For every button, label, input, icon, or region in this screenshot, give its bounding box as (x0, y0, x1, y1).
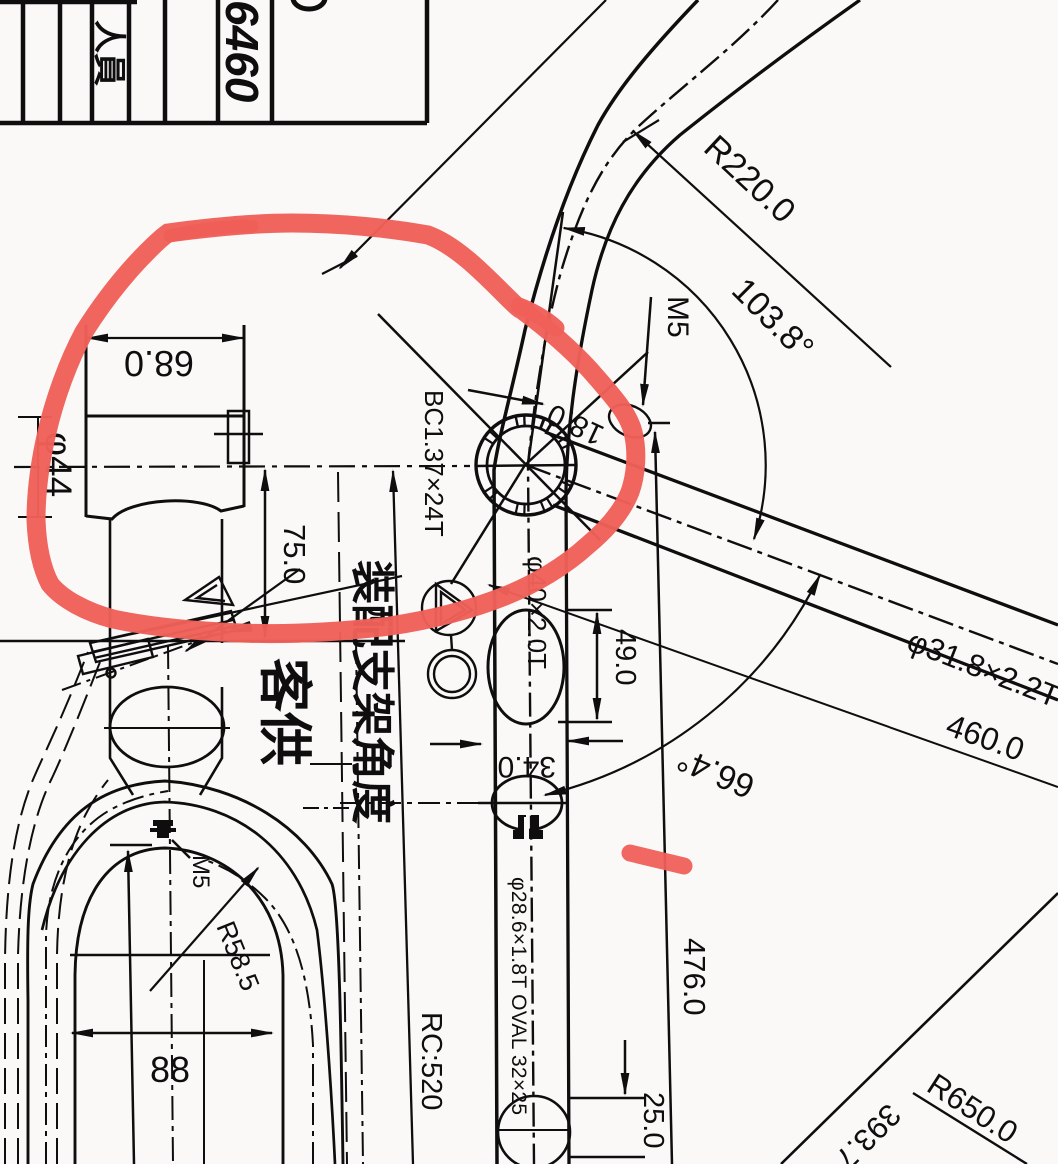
svg-text:6460: 6460 (216, 0, 268, 103)
svg-text:RC:520: RC:520 (415, 1012, 447, 1110)
svg-text:25.0: 25.0 (637, 1092, 669, 1148)
svg-text:34.0: 34.0 (498, 750, 556, 783)
svg-text:装配支架角度: 装配支架角度 (347, 560, 396, 824)
svg-text:BC1.37×24T: BC1.37×24T (419, 390, 449, 537)
svg-text:68.0: 68.0 (124, 343, 194, 384)
svg-text:客供: 客供 (254, 658, 314, 766)
svg-text:49.0: 49.0 (609, 629, 641, 685)
svg-text:M5: M5 (187, 855, 214, 888)
svg-text:88: 88 (150, 1049, 190, 1090)
svg-text:75.0: 75.0 (277, 524, 312, 584)
svg-text:φ28.6×1.8T OVAL 32×25: φ28.6×1.8T OVAL 32×25 (507, 877, 530, 1115)
svg-text:人員: 人員 (91, 20, 128, 86)
svg-text:M5: M5 (661, 296, 694, 338)
svg-text:476.0: 476.0 (677, 938, 712, 1016)
